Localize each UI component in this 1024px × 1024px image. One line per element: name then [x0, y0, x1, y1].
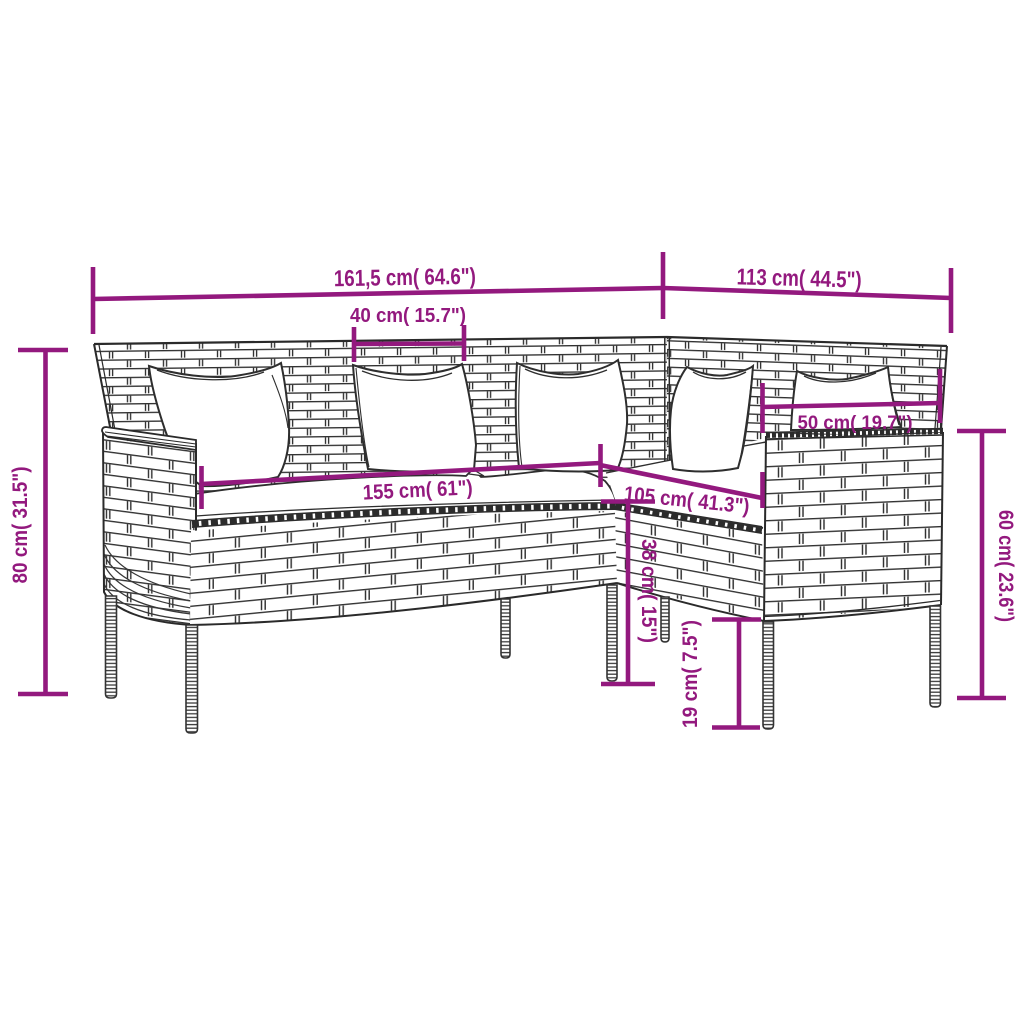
svg-text:50 cm( 19.7"): 50 cm( 19.7"): [798, 413, 913, 434]
svg-text:60 cm( 23.6"): 60 cm( 23.6"): [994, 510, 1017, 622]
svg-text:38 cm( 15"): 38 cm( 15"): [637, 539, 660, 643]
svg-text:19 cm( 7.5"): 19 cm( 7.5"): [679, 620, 702, 728]
svg-text:113 cm( 44.5"): 113 cm( 44.5"): [736, 263, 862, 292]
svg-text:40 cm( 15.7"): 40 cm( 15.7"): [350, 305, 466, 327]
svg-text:161,5 cm( 64.6"): 161,5 cm( 64.6"): [334, 263, 476, 291]
svg-text:80 cm( 31.5"): 80 cm( 31.5"): [9, 467, 32, 584]
